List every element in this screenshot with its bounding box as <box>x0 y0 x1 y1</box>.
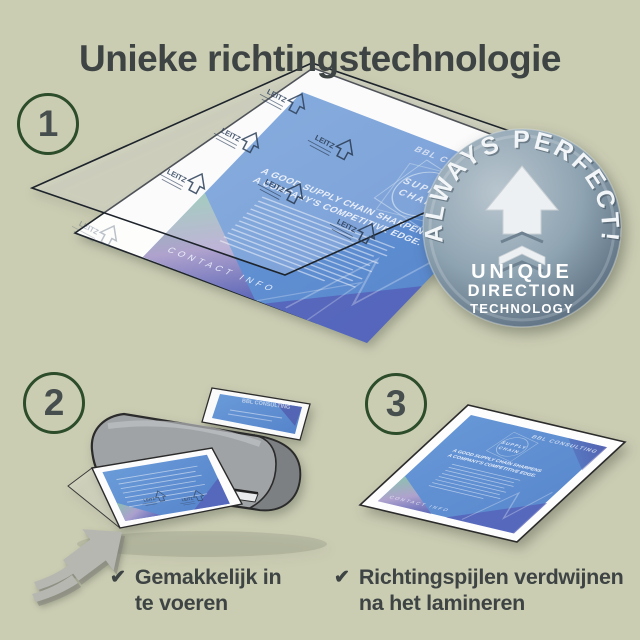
step-1-circle: 1 <box>17 93 79 155</box>
badge-line1: UNIQUE <box>471 261 573 283</box>
page-title: Unieke richtingstechnologie <box>0 38 640 80</box>
badge-line2: DIRECTION <box>468 282 577 300</box>
feed-arrow <box>32 529 122 602</box>
step-2-circle: 2 <box>23 372 85 434</box>
check-icon: ✔ <box>334 564 350 589</box>
always-perfect-badge: ALWAYS PERFECT! ALWAYS PERFECT! UNIQUE D… <box>420 126 624 330</box>
step-3-circle: 3 <box>365 373 427 435</box>
checklist-item-arrows-disappear: ✔ Richtingspijlen verdwijnen na het lami… <box>334 564 624 616</box>
checklist-1-line2: te voeren <box>135 590 281 616</box>
badge-line3: TECHNOLOGY <box>470 301 574 316</box>
step-2-number: 2 <box>44 382 65 424</box>
step-3-number: 3 <box>386 383 407 425</box>
check-icon: ✔ <box>110 564 126 589</box>
checklist-2-line2: na het lamineren <box>359 590 624 616</box>
checklist-text: Richtingspijlen verdwijnen na het lamine… <box>359 564 624 616</box>
checklist-item-easy-feed: ✔ Gemakkelijk in te voeren <box>110 564 281 616</box>
step-1-number: 1 <box>38 103 59 145</box>
checklist-1-line1: Gemakkelijk in <box>135 564 281 590</box>
checklist-2-line1: Richtingspijlen verdwijnen <box>359 564 624 590</box>
checklist-text: Gemakkelijk in te voeren <box>135 564 281 616</box>
